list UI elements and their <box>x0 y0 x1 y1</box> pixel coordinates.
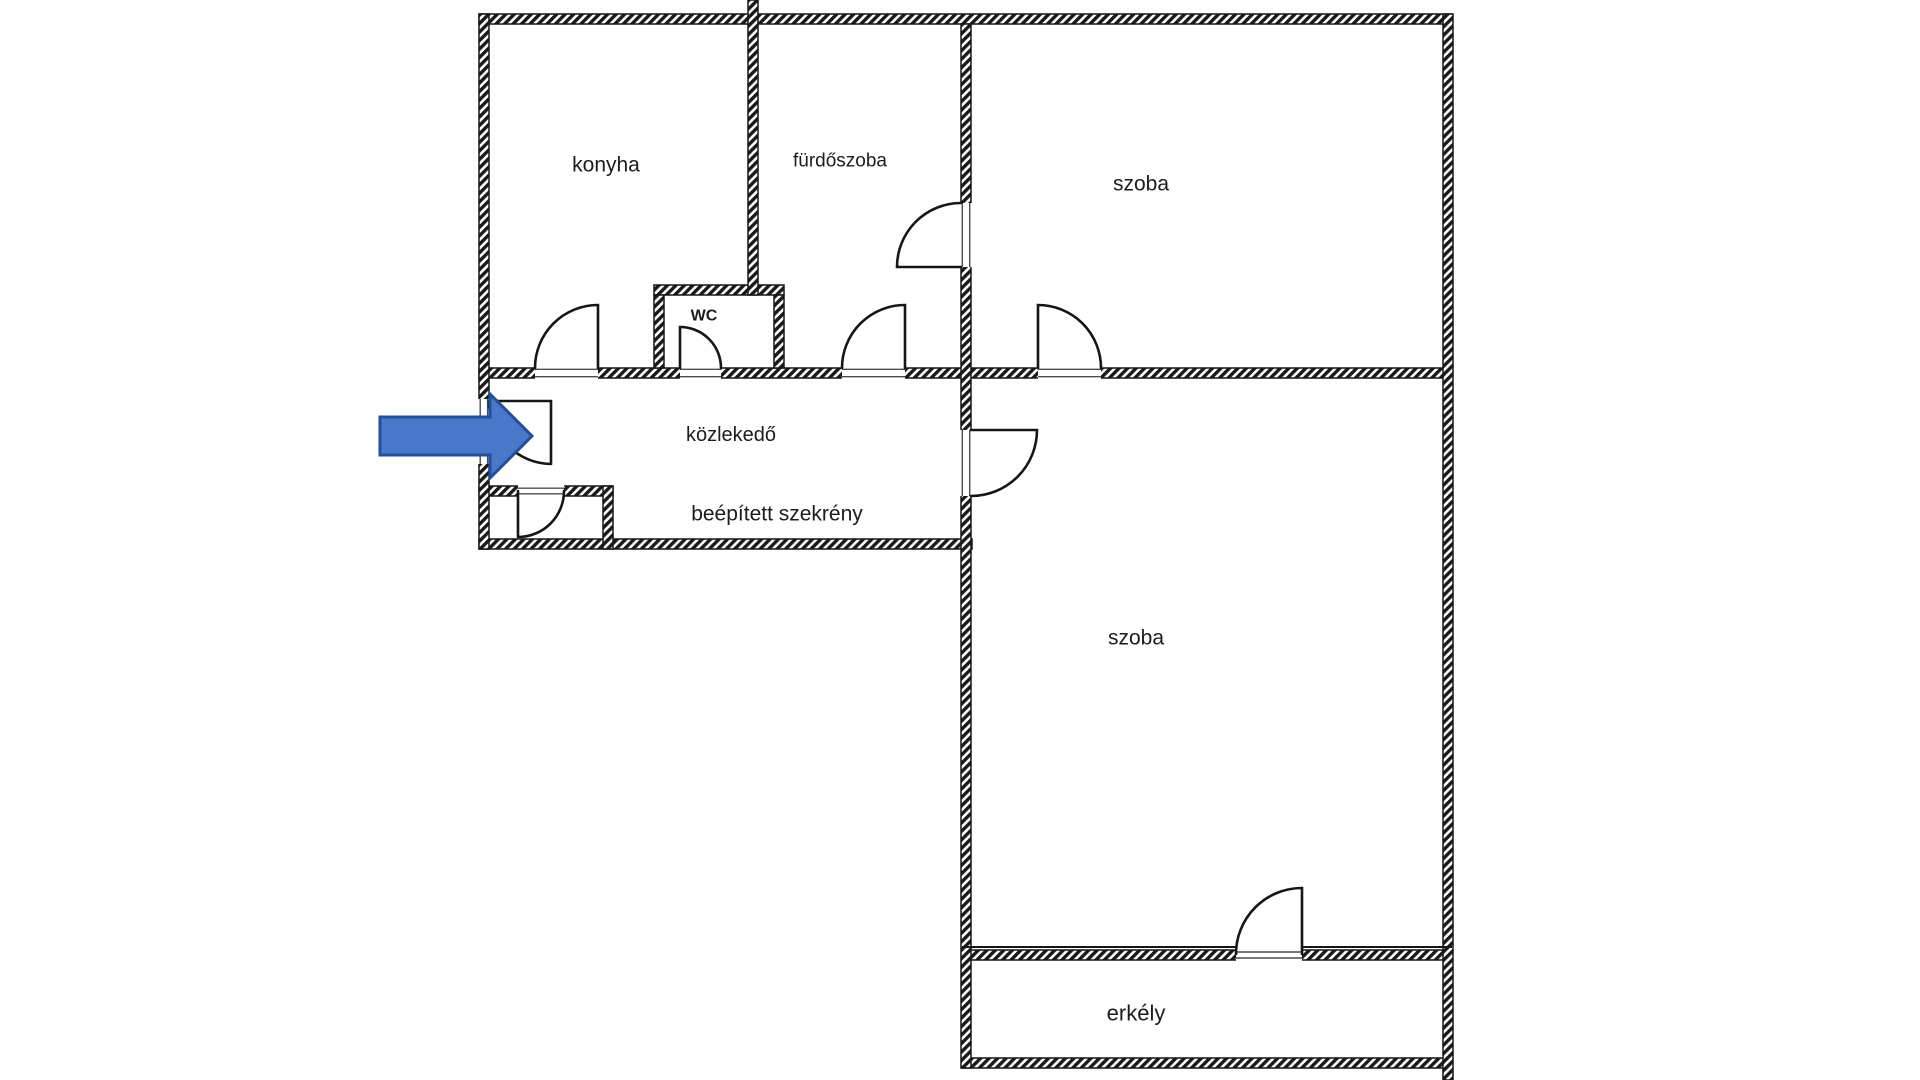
room-label-furdoszoba: fürdőszoba <box>793 151 887 172</box>
room-labels-group: konyha fürdőszoba szoba WC közlekedő beé… <box>572 151 1169 1026</box>
room-label-szoba-also: szoba <box>1108 627 1164 650</box>
opening-closet <box>518 485 564 498</box>
door-arc-szoba-also <box>971 430 1037 496</box>
entrance-arrow <box>380 394 532 478</box>
opening-wc <box>680 367 721 380</box>
floor-plan-canvas: konyha fürdőszoba szoba WC közlekedő beé… <box>0 0 1920 1080</box>
wall-left-exterior <box>479 14 489 549</box>
room-label-erkely: erkély <box>1107 1001 1166 1026</box>
wall-closet-right <box>603 486 613 549</box>
wall-wc-right <box>774 295 784 368</box>
opening-konyha <box>535 367 598 380</box>
wall-wc-left <box>654 295 664 368</box>
doors-group <box>489 203 1302 954</box>
opening-furdo-szoba <box>960 203 973 267</box>
opening-szoba-szoba <box>1038 367 1101 380</box>
door-arc-closet <box>518 491 564 537</box>
room-label-szoba-felso: szoba <box>1113 173 1169 196</box>
wall-right-exterior <box>1443 14 1453 1080</box>
opening-erkely <box>1236 949 1302 962</box>
door-openings-group <box>477 203 1302 962</box>
room-label-wc: WC <box>691 308 718 325</box>
opening-szoba-also <box>960 430 973 496</box>
wall-hallway-bottom <box>479 539 972 549</box>
door-arc-szoba-szoba <box>1038 305 1101 368</box>
wall-central-vertical <box>961 24 971 1068</box>
wall-top-exterior <box>479 14 1452 24</box>
door-arc-furdo-entry <box>842 305 905 368</box>
opening-furdo-entry <box>842 367 905 380</box>
room-label-beepitett-szekreny: beépített szekrény <box>691 503 863 526</box>
wall-szoba-erkely <box>962 950 1452 960</box>
wall-wc-top <box>654 285 784 295</box>
door-arc-konyha <box>535 305 598 368</box>
door-sill-lines <box>480 203 1302 958</box>
wall-konyha-furdo <box>748 0 758 295</box>
door-arc-furdoszoba <box>897 203 961 267</box>
door-arc-erkely <box>1236 888 1302 954</box>
room-label-konyha: konyha <box>572 154 640 177</box>
wall-erkely-bottom <box>962 1058 1452 1068</box>
room-label-kozlekedo: közlekedő <box>686 424 776 446</box>
floor-plan: konyha fürdőszoba szoba WC közlekedő beé… <box>0 0 1920 1080</box>
door-arc-wc <box>680 327 721 368</box>
